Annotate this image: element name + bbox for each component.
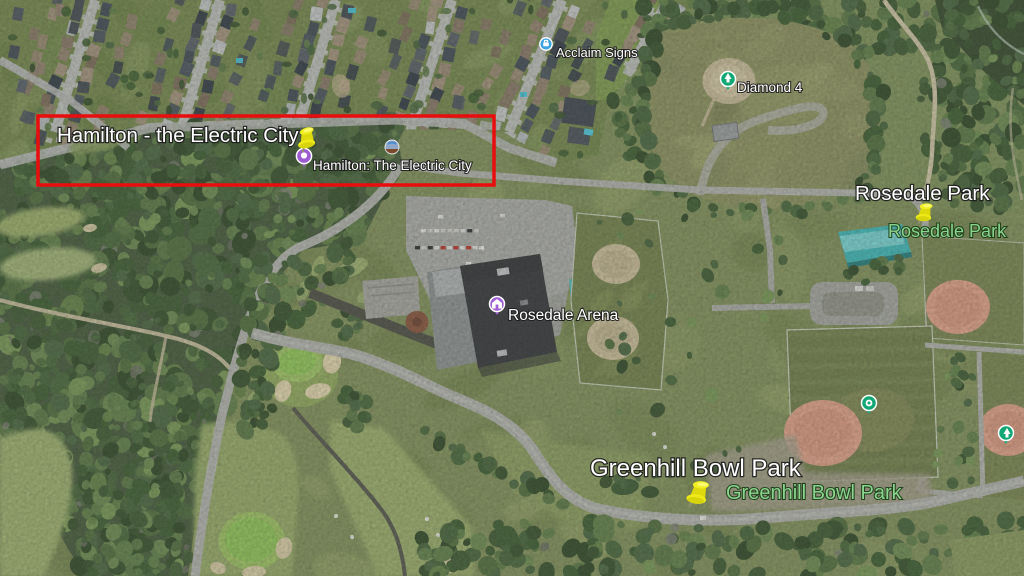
svg-text:Rosedale Arena: Rosedale Arena [508,307,619,324]
svg-text:Acclaim Signs: Acclaim Signs [556,45,638,60]
svg-text:Hamilton - the Electric City: Hamilton - the Electric City [57,124,299,147]
svg-text:Greenhill Bowl Park: Greenhill Bowl Park [590,455,802,482]
svg-text:Rosedale Park: Rosedale Park [888,221,1007,241]
svg-text:Hamilton: The Electric City: Hamilton: The Electric City [313,158,472,173]
svg-text:Rosedale Park: Rosedale Park [855,182,990,205]
svg-text:Diamond 4: Diamond 4 [737,80,803,95]
svg-text:Greenhill Bowl Park: Greenhill Bowl Park [726,482,903,504]
